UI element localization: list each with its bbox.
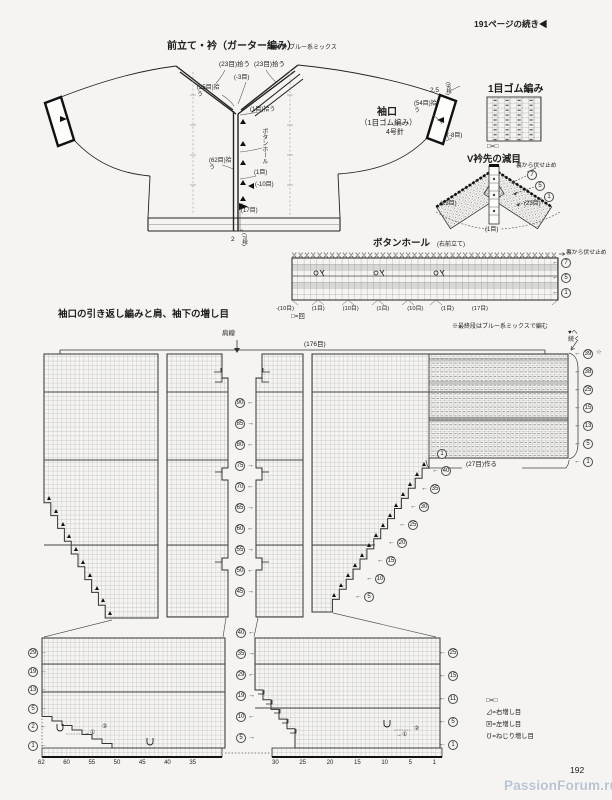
rib-chart-title: 1目ゴム編み xyxy=(488,84,544,96)
stitch-count: 60 xyxy=(63,760,70,766)
strip-row-1: 1 xyxy=(437,449,447,459)
row-number: 5 xyxy=(448,717,458,727)
slope-row-number: 10 xyxy=(375,574,385,584)
row-number: 45 xyxy=(235,587,245,597)
row-number: 10 xyxy=(236,712,246,722)
vneck-left-sts: (23目) xyxy=(440,201,457,208)
row-number: 80 xyxy=(235,440,245,450)
cuff-stitch-label: （1目ゴム編み） xyxy=(360,119,417,128)
lower-left-block xyxy=(42,638,225,748)
vneck-row-1: 1 xyxy=(544,192,554,202)
pickup-25-label: (25目)拾う xyxy=(197,85,223,99)
increase-note: ② xyxy=(414,726,419,733)
buttonhole-chart-title: ボタンホール xyxy=(373,239,430,250)
row-number: 25 xyxy=(583,385,593,395)
continue-note: ♥へ続く xyxy=(568,330,583,344)
row-number: 19 xyxy=(236,691,246,701)
stitch-count: 1 xyxy=(433,760,436,766)
buttonhole-row-numbers: 751 xyxy=(561,258,571,298)
row-number: 5 xyxy=(236,733,246,743)
upper-left-sleeve-block xyxy=(44,354,158,618)
legend-line: ⊿=右増し目 xyxy=(486,707,534,716)
row-number: 50 xyxy=(235,566,245,576)
buttonhole-bindoff-note: 裏から伏せ止め xyxy=(566,250,610,257)
stitch-span-label: -(10目) xyxy=(276,303,294,312)
row-number: 29 xyxy=(236,670,246,680)
stitch-count: 55 xyxy=(88,760,95,766)
pickup-neck-right-label: (23目)拾う xyxy=(254,61,285,68)
magazine-page: 191ページの続き◀ 192 PassionForum.ru 前立て・衿（ガータ… xyxy=(0,0,612,800)
row-number: 5 xyxy=(561,273,571,283)
lower-left-axis: 62605550454035 xyxy=(38,760,196,766)
main-chart-title: 袖口の引き返し編みと肩、袖下の増し目 xyxy=(58,310,229,321)
row-number: 40 xyxy=(236,628,246,638)
row-number: 85 xyxy=(235,419,245,429)
row-number: 75 xyxy=(235,461,245,471)
cuff-needle-label: 4号針 xyxy=(386,129,404,137)
stitch-count: 35 xyxy=(189,760,196,766)
row-number: 19 xyxy=(28,667,38,677)
increase-note: →① xyxy=(396,732,407,739)
row-number: 2 xyxy=(28,722,38,732)
rib-chart-grid xyxy=(487,97,541,141)
slope-row-number: 35 xyxy=(430,484,440,494)
stitch-count: 10 xyxy=(381,760,388,766)
row-number: 5 xyxy=(583,439,593,449)
decrease-10-label: (-10目) xyxy=(255,182,274,189)
stitch-span-label: (1目) xyxy=(312,303,325,312)
stitch-count: 45 xyxy=(139,760,146,766)
row-number: 13 xyxy=(28,685,38,695)
decrease-8-label: (-8目) xyxy=(447,133,462,140)
color-note: ※最終段はブルー系ミックスで編む xyxy=(452,324,548,331)
row-number: 35 xyxy=(236,649,246,659)
stitch-span-label: (10目) xyxy=(343,303,359,312)
row-number: 25 xyxy=(448,648,458,658)
sts-17-label: (17目) xyxy=(241,208,258,215)
vneck-bindoff-note: 裏から伏せ止め xyxy=(516,163,557,170)
buttonhole-count-label: (1目) xyxy=(254,170,267,177)
row-number: 1 xyxy=(561,288,571,298)
upper-chart-art xyxy=(44,340,578,637)
cast-on-strip xyxy=(429,354,568,458)
row-number: 65 xyxy=(235,503,245,513)
slope-row-number: 30 xyxy=(419,502,429,512)
upper-front-shoulder-block xyxy=(256,354,303,617)
legend-line: ℧=ねじり増し目 xyxy=(486,731,534,740)
pickup-neck-left-label: (23目)拾う xyxy=(219,61,250,68)
stitch-span-label: (17目) xyxy=(472,303,488,312)
row-number: 11 xyxy=(448,694,458,704)
row-number: 90 xyxy=(235,398,245,408)
continued-from-header: 191ページの続き◀ xyxy=(474,20,548,30)
slope-row-number: 20 xyxy=(397,538,407,548)
stitch-count: 25 xyxy=(299,760,306,766)
vneck-row-5: 5 xyxy=(535,181,545,191)
lower-right-row-numbers: 25151151 xyxy=(448,648,458,750)
pickup-1-label: (1目)拾う xyxy=(250,107,275,114)
cast-on-27-label: (27目)作る xyxy=(466,461,497,468)
upper-back-shoulder-block xyxy=(167,354,228,617)
row-number: 1 xyxy=(583,457,593,467)
slope-row-number: 15 xyxy=(386,556,396,566)
stitch-count: 5 xyxy=(409,760,412,766)
upper-center-row-numbers: 90858075706560555045 xyxy=(235,398,245,597)
shoulder-line-label: 肩線 xyxy=(222,330,235,337)
increase-note: ② xyxy=(102,724,107,731)
schematic-title-note: 5号針 ブルー系ミックス xyxy=(272,45,337,52)
row-number: 5 xyxy=(28,704,38,714)
legend-line: ⊠=左増し目 xyxy=(486,719,534,728)
lower-left-row-numbers: 291913521 xyxy=(28,648,38,751)
vneck-row-7: 7 xyxy=(527,170,537,180)
sweater-schematic xyxy=(45,65,460,231)
upper-right-row-numbers: 393825151351 xyxy=(583,349,593,467)
row-number: 1 xyxy=(448,740,458,750)
vneck-right-sts: (23目) xyxy=(524,201,541,208)
stitch-count: 30 xyxy=(272,760,279,766)
rib-chart-legend: □=□ xyxy=(487,143,498,150)
row-number: 15 xyxy=(448,671,458,681)
row-number: 55 xyxy=(235,545,245,555)
vneck-chart-title: V衿先の減目 xyxy=(467,155,521,166)
row-number: 1 xyxy=(28,741,38,751)
slope-row-number: 25 xyxy=(408,520,418,530)
page-number: 192 xyxy=(570,766,584,776)
stitch-count: 15 xyxy=(354,760,361,766)
increase-note: →① xyxy=(84,730,95,737)
stitch-span-label: (1目) xyxy=(376,303,389,312)
stitch-count: 62 xyxy=(38,760,45,766)
final-row-star: ☆ xyxy=(596,349,602,356)
buttonhole-legend: □=回 xyxy=(291,313,305,320)
pickup-54-label: (54目)拾う xyxy=(414,101,438,115)
vneck-chart-art xyxy=(436,164,560,229)
row-number: 70 xyxy=(235,482,245,492)
row-number: 39 xyxy=(583,349,593,359)
stitch-count: 20 xyxy=(327,760,334,766)
slope-row-number: 5 xyxy=(364,592,374,602)
buttonhole-chart-art xyxy=(292,253,565,306)
stitch-span-label: (1目) xyxy=(441,303,454,312)
hem-width-label: 2 xyxy=(231,236,235,243)
neck-decrease-label: (-3目) xyxy=(234,75,249,82)
stitch-count: 40 xyxy=(164,760,171,766)
slope-row-number: 40 xyxy=(441,466,451,476)
watermark: PassionForum.ru xyxy=(504,778,612,793)
stitch-count: 50 xyxy=(114,760,121,766)
buttonhole-span-labels: -(10目)(1目)(10目)(1目)(10目)(1目)(17目) xyxy=(276,303,488,312)
row-number: 60 xyxy=(235,524,245,534)
cast-on-total-label: (176目) xyxy=(303,341,327,348)
lower-right-axis: 302520151051 xyxy=(272,760,436,766)
symbol-legend: □=□⊿=右増し目⊠=左増し目℧=ねじり増し目 xyxy=(486,697,534,740)
row-number: 38 xyxy=(583,367,593,377)
stitch-span-label: (10目) xyxy=(407,303,423,312)
cuff-rows-label: (9段) xyxy=(444,82,451,104)
row-number: 13 xyxy=(583,421,593,431)
lower-right-block xyxy=(255,638,440,748)
buttonhole-chart-subtitle: (右前立て) xyxy=(437,242,465,249)
hem-rows-label: (7段) xyxy=(240,233,247,255)
page-line-art xyxy=(0,0,612,800)
cuff-width-label: 2.5 xyxy=(430,87,439,94)
pickup-62-label: (62目)拾う xyxy=(209,158,235,172)
lower-center-row-numbers: 40352919105 xyxy=(236,628,246,743)
row-number: 29 xyxy=(28,648,38,658)
row-number: 15 xyxy=(583,403,593,413)
row-number: 7 xyxy=(561,258,571,268)
legend-line: □=□ xyxy=(486,697,534,704)
vneck-center-st: (1目) xyxy=(485,227,498,234)
cuff-title: 袖口 xyxy=(377,107,397,119)
buttonhole-label: ボタンホール xyxy=(260,128,267,174)
